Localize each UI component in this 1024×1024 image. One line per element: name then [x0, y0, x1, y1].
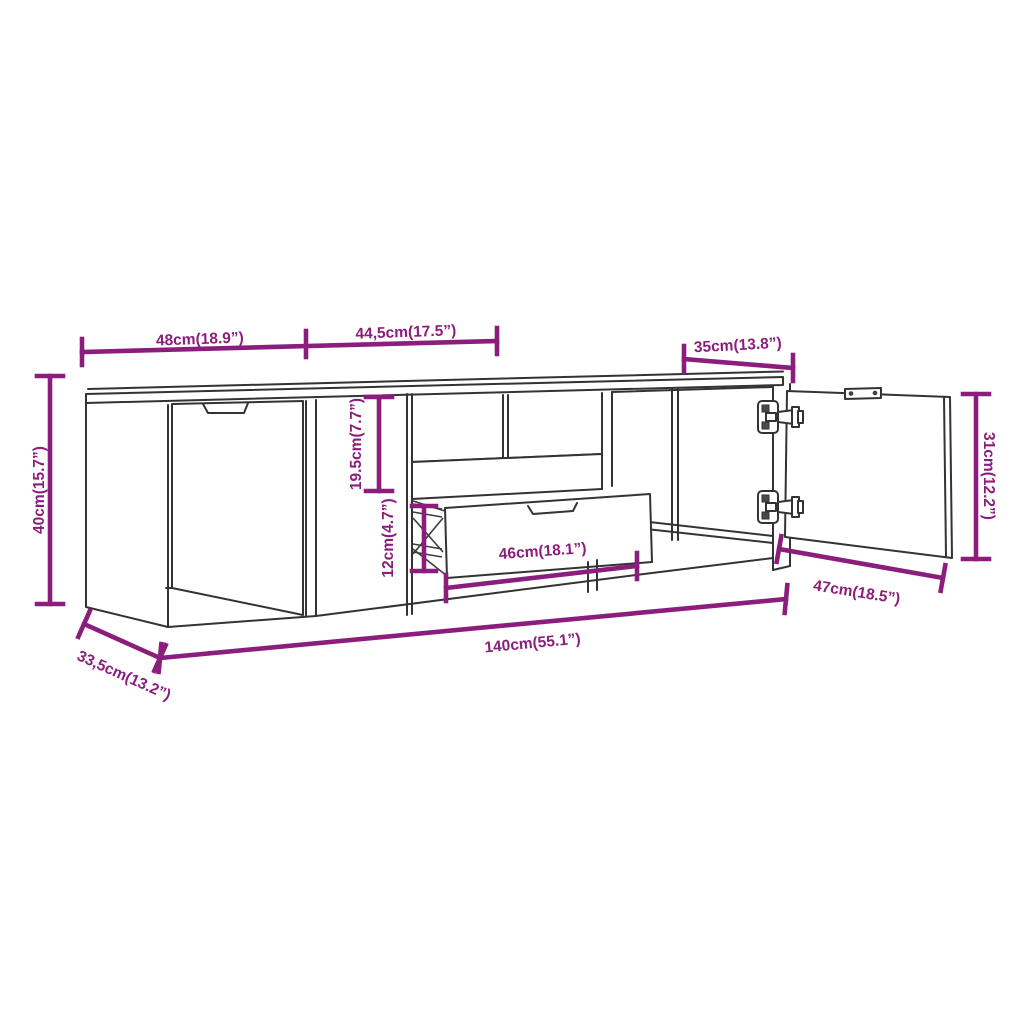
drawer-slides	[413, 501, 447, 576]
tv-stand-diagram: 48cm(18.9”) 44,5cm(17.5”) 35cm(13.8”) 40…	[0, 0, 1024, 1024]
dimension-label: 12cm(4.7”)	[380, 498, 397, 577]
open-shelf-niche	[412, 395, 602, 462]
dimension-label: 44,5cm(17.5”)	[355, 322, 456, 343]
dimension-label: 31cm(12.2”)	[980, 432, 997, 520]
dimension-label: 48cm(18.9”)	[156, 329, 244, 349]
left-side-panel	[86, 403, 168, 627]
dimension-niche-height: 19.5cm(7.7”)	[348, 397, 392, 491]
rail-panel	[412, 454, 602, 499]
dimension-label: 19.5cm(7.7”)	[348, 398, 365, 490]
dimension-overall-height: 40cm(15.7”)	[31, 376, 63, 604]
open-right-door	[785, 388, 952, 558]
product-dimension-image: 48cm(18.9”) 44,5cm(17.5”) 35cm(13.8”) 40…	[0, 0, 1024, 1024]
left-partition	[306, 400, 316, 616]
dimension-door-height: 31cm(12.2”)	[963, 394, 997, 559]
open-drawer	[445, 494, 652, 578]
mounting-plate-icon	[845, 388, 881, 399]
dimension-label: 35cm(13.8”)	[693, 335, 782, 357]
dimension-label: 47cm(18.5”)	[812, 577, 901, 608]
left-door	[166, 401, 303, 615]
dimension-label: 140cm(55.1”)	[484, 631, 582, 657]
dimension-top-left-width: 48cm(18.9”) 44,5cm(17.5”)	[82, 322, 497, 365]
dimension-label: 40cm(15.7”)	[31, 446, 48, 534]
